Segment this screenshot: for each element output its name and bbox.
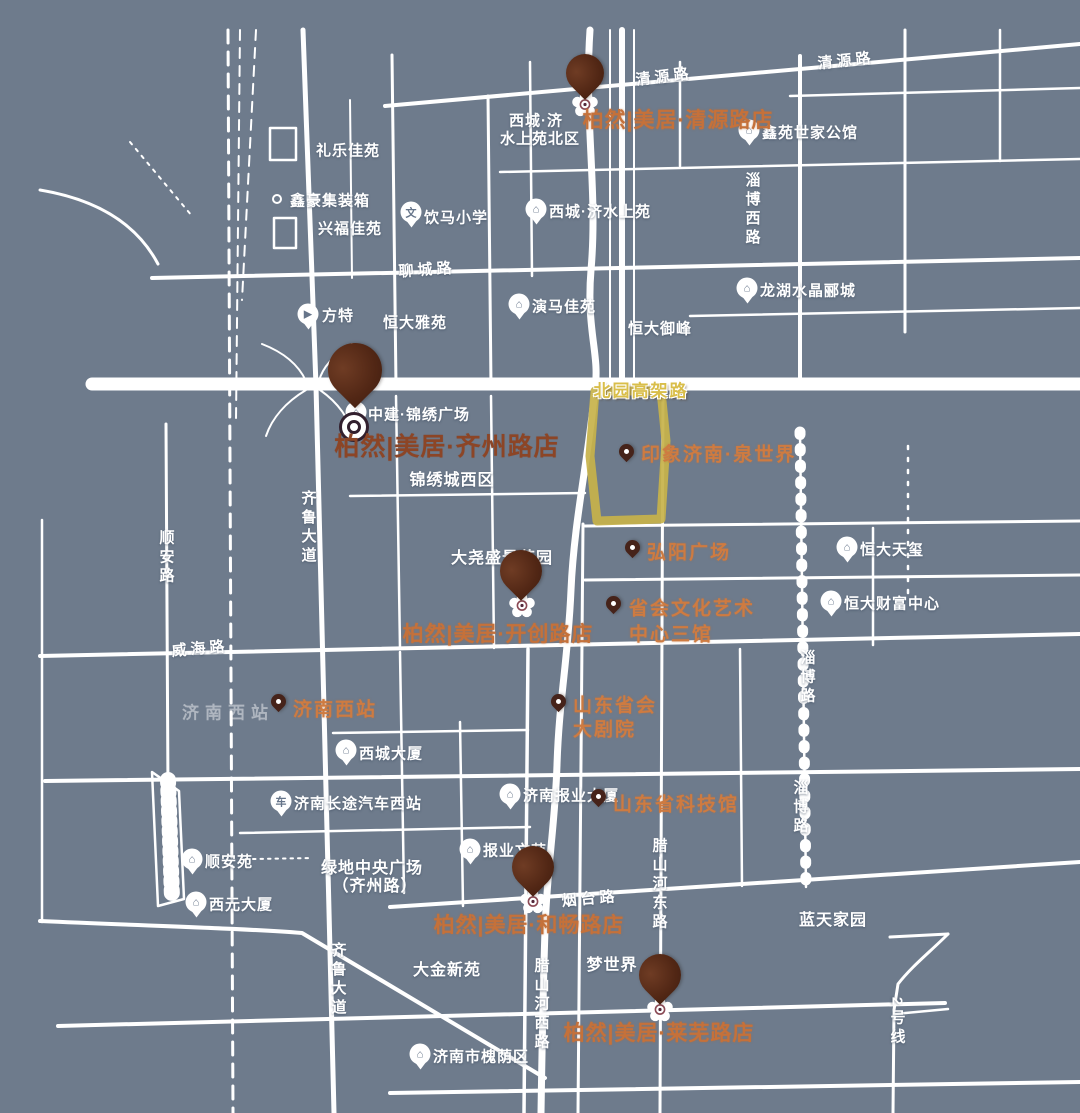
- store-label-qingyuanlu: 柏然|美居·清源路店: [583, 104, 774, 134]
- small-dot: [272, 194, 282, 204]
- area-label: 礼乐佳苑: [316, 140, 380, 161]
- highway-label: 北园高架路: [594, 377, 689, 402]
- poi-label: 西城·济水上苑: [549, 201, 651, 222]
- poi-pin: ⌂: [837, 537, 858, 558]
- poi-label: 饮马小学: [424, 207, 488, 228]
- area-label: 蓝天家园: [799, 906, 867, 930]
- area-label: 兴福佳苑: [318, 218, 382, 239]
- poi-label: 鑫苑世家公馆: [762, 122, 858, 143]
- store-label-qizhoulu: 柏然|美居·齐州路店: [334, 427, 559, 463]
- building-icon: ⌂: [189, 853, 196, 865]
- road-label-shunan: 顺安路: [156, 530, 177, 587]
- orange-poi-label: 省会文化艺术: [629, 594, 755, 621]
- store-label-kaichuanglu: 柏然|美居·开创路店: [403, 618, 594, 648]
- road-label-zibo-1: 淄博路: [797, 650, 818, 707]
- area-label: 恒大雅苑: [383, 312, 447, 333]
- poi-pin: ⌂: [186, 892, 207, 913]
- area-label: 水上苑北区: [500, 128, 580, 149]
- road-label-qilu-1: 齐鲁大道: [298, 490, 319, 566]
- poi-pin: 文: [401, 202, 422, 223]
- road-label-line2: 2号线: [887, 997, 908, 1047]
- building-icon: ⌂: [533, 203, 540, 215]
- poi-pin: ⌂: [336, 740, 357, 761]
- road-label-lashanhe-west: 腊山河西路: [531, 958, 552, 1053]
- building-icon: ⌂: [343, 744, 350, 756]
- poi-label: 西城大厦: [359, 743, 423, 764]
- theme-park-icon: ▶: [298, 304, 319, 325]
- poi-label: 方特: [322, 305, 354, 326]
- area-label: 鑫豪集装箱: [290, 190, 370, 211]
- poi-label: 演马佳苑: [532, 296, 596, 317]
- orange-poi-label: 印象济南·泉世界: [641, 440, 796, 467]
- bus-station-icon: 车: [271, 791, 292, 812]
- jinan-hotel-map: 清源路 清源路 聊城路 威海路 烟台路 淄博西路 淄博路 淄博路 顺安路 齐鲁大…: [0, 0, 1080, 1113]
- orange-poi-label: 中心三馆: [629, 620, 713, 647]
- building-icon: ⌂: [844, 541, 851, 553]
- poi-label: 济南市槐荫区: [433, 1046, 529, 1067]
- orange-poi-label: 弘阳广场: [647, 538, 731, 565]
- area-label: 锦绣城西区: [409, 466, 494, 490]
- area-label-jinanwest-faded: 济南西站: [182, 699, 274, 724]
- orange-poi-label: 山东省科技馆: [613, 790, 739, 817]
- area-label: 恒大御峰: [628, 318, 692, 339]
- poi-label: 恒大天玺: [860, 539, 924, 560]
- poi-label: 龙湖水晶郦城: [760, 280, 856, 301]
- poi-label: 西元大厦: [209, 894, 273, 915]
- orange-poi-label: 济南西站: [293, 695, 377, 722]
- building-icon: ⌂: [744, 282, 751, 294]
- poi-label: 顺安苑: [205, 851, 253, 872]
- poi-pin: ⌂: [821, 591, 842, 612]
- building-icon: ⌂: [516, 298, 523, 310]
- poi-pin: ⌂: [737, 278, 758, 299]
- poi-label: 济南长途汽车西站: [294, 793, 422, 814]
- store-label-laiwulu: 柏然|美居·莱芜路店: [564, 1017, 755, 1047]
- area-label: （齐州路）: [332, 872, 417, 896]
- area-label: 梦世界: [586, 951, 637, 975]
- orange-poi-label: 大剧院: [573, 715, 636, 742]
- road-label-zibo-west: 淄博西路: [742, 172, 763, 248]
- poi-pin: ⌂: [509, 294, 530, 315]
- poi-pin: ⌂: [500, 784, 521, 805]
- poi-pin: ⌂: [460, 839, 481, 860]
- poi-pin: ⌂: [182, 849, 203, 870]
- poi-label: 恒大财富中心: [844, 593, 940, 614]
- building-icon: ⌂: [193, 896, 200, 908]
- road-label-qilu-2: 齐鲁大道: [328, 942, 349, 1018]
- building-icon: ⌂: [828, 595, 835, 607]
- district-icon: ⌂: [410, 1044, 431, 1065]
- poi-pin: ⌂: [526, 199, 547, 220]
- building-icon: ⌂: [467, 843, 474, 855]
- store-label-hechanglu: 柏然|美居·和畅路店: [434, 909, 625, 939]
- road-label-lashanhe-east: 腊山河东路: [649, 838, 670, 933]
- area-label: 大金新苑: [413, 956, 481, 980]
- orange-poi-label: 山东省会: [573, 691, 657, 718]
- school-icon: 文: [406, 204, 417, 220]
- building-icon: ⌂: [507, 788, 514, 800]
- road-label-liaocheng: 聊城路: [398, 257, 456, 282]
- road-label-zibo-2: 淄博路: [790, 780, 811, 837]
- poi-label: 中建·锦绣广场: [368, 404, 470, 425]
